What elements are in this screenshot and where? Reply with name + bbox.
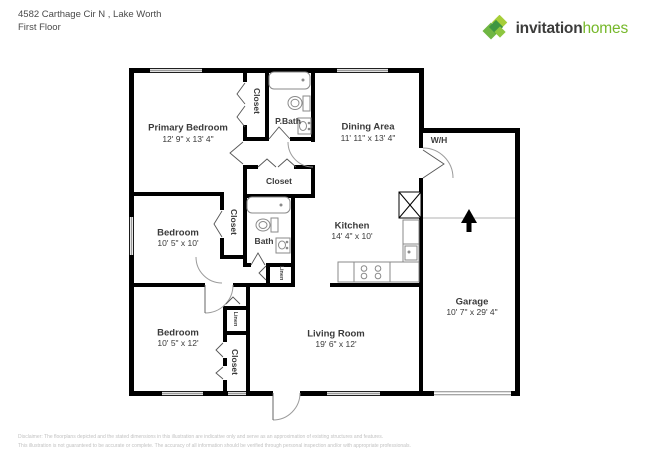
bath-sink-icon [276,238,290,253]
room-dims-bedroom-2: 10' 5" x 12' [157,338,198,348]
room-label-garage: Garage [456,297,489,308]
linen-label-hall: Linen [278,266,284,281]
room-label-kitchen: Kitchen [335,221,370,232]
floorplan-page: 4582 Carthage Cir N , Lake Worth First F… [0,0,650,460]
room-label-bath: Bath [255,236,274,246]
bath-tub-icon [247,197,290,213]
closet-label-hall: Closet [266,176,292,186]
disclaimer-line-2: This illustration is not guaranteed to b… [18,442,411,451]
bath-toilet-icon [256,218,278,232]
hvac-unit-icon [399,192,421,218]
room-dims-living-room: 19' 6" x 12' [315,339,356,349]
disclaimer-line-1: Disclaimer: The floorplans depicted and … [18,433,411,442]
garage-door [434,392,511,395]
room-dims-primary-bedroom: 12' 9" x 13' 4" [162,134,213,144]
floorplan-drawing [0,0,650,460]
room-label-pbath: P.Bath [275,116,301,126]
pbath-tub-icon [269,72,310,89]
room-label-bedroom-2: Bedroom [157,328,199,339]
closet-label-bedroom-1: Closet [229,209,239,235]
disclaimer: Disclaimer: The floorplans depicted and … [18,433,411,451]
linen-label-bedroom-2: Linen [232,312,238,327]
room-dims-garage: 10' 7" x 29' 4" [446,307,497,317]
north-arrow-icon [461,209,477,232]
room-dims-kitchen: 14' 4" x 10' [331,231,372,241]
room-dims-dining-area: 11' 11" x 13' 4" [341,133,396,143]
room-label-living-room: Living Room [307,329,365,340]
closet-label-primary: Closet [252,88,262,114]
room-label-primary-bedroom: Primary Bedroom [148,123,228,134]
room-label-dining-area: Dining Area [342,122,395,133]
stove-icon [338,262,419,282]
closet-label-bedroom-2: Closet [230,349,240,375]
room-dims-bedroom-1: 10' 5" x 10' [157,238,198,248]
pbath-toilet-icon [288,96,310,111]
room-label-water-heater: W/H [431,135,448,145]
room-label-bedroom-1: Bedroom [157,228,199,239]
